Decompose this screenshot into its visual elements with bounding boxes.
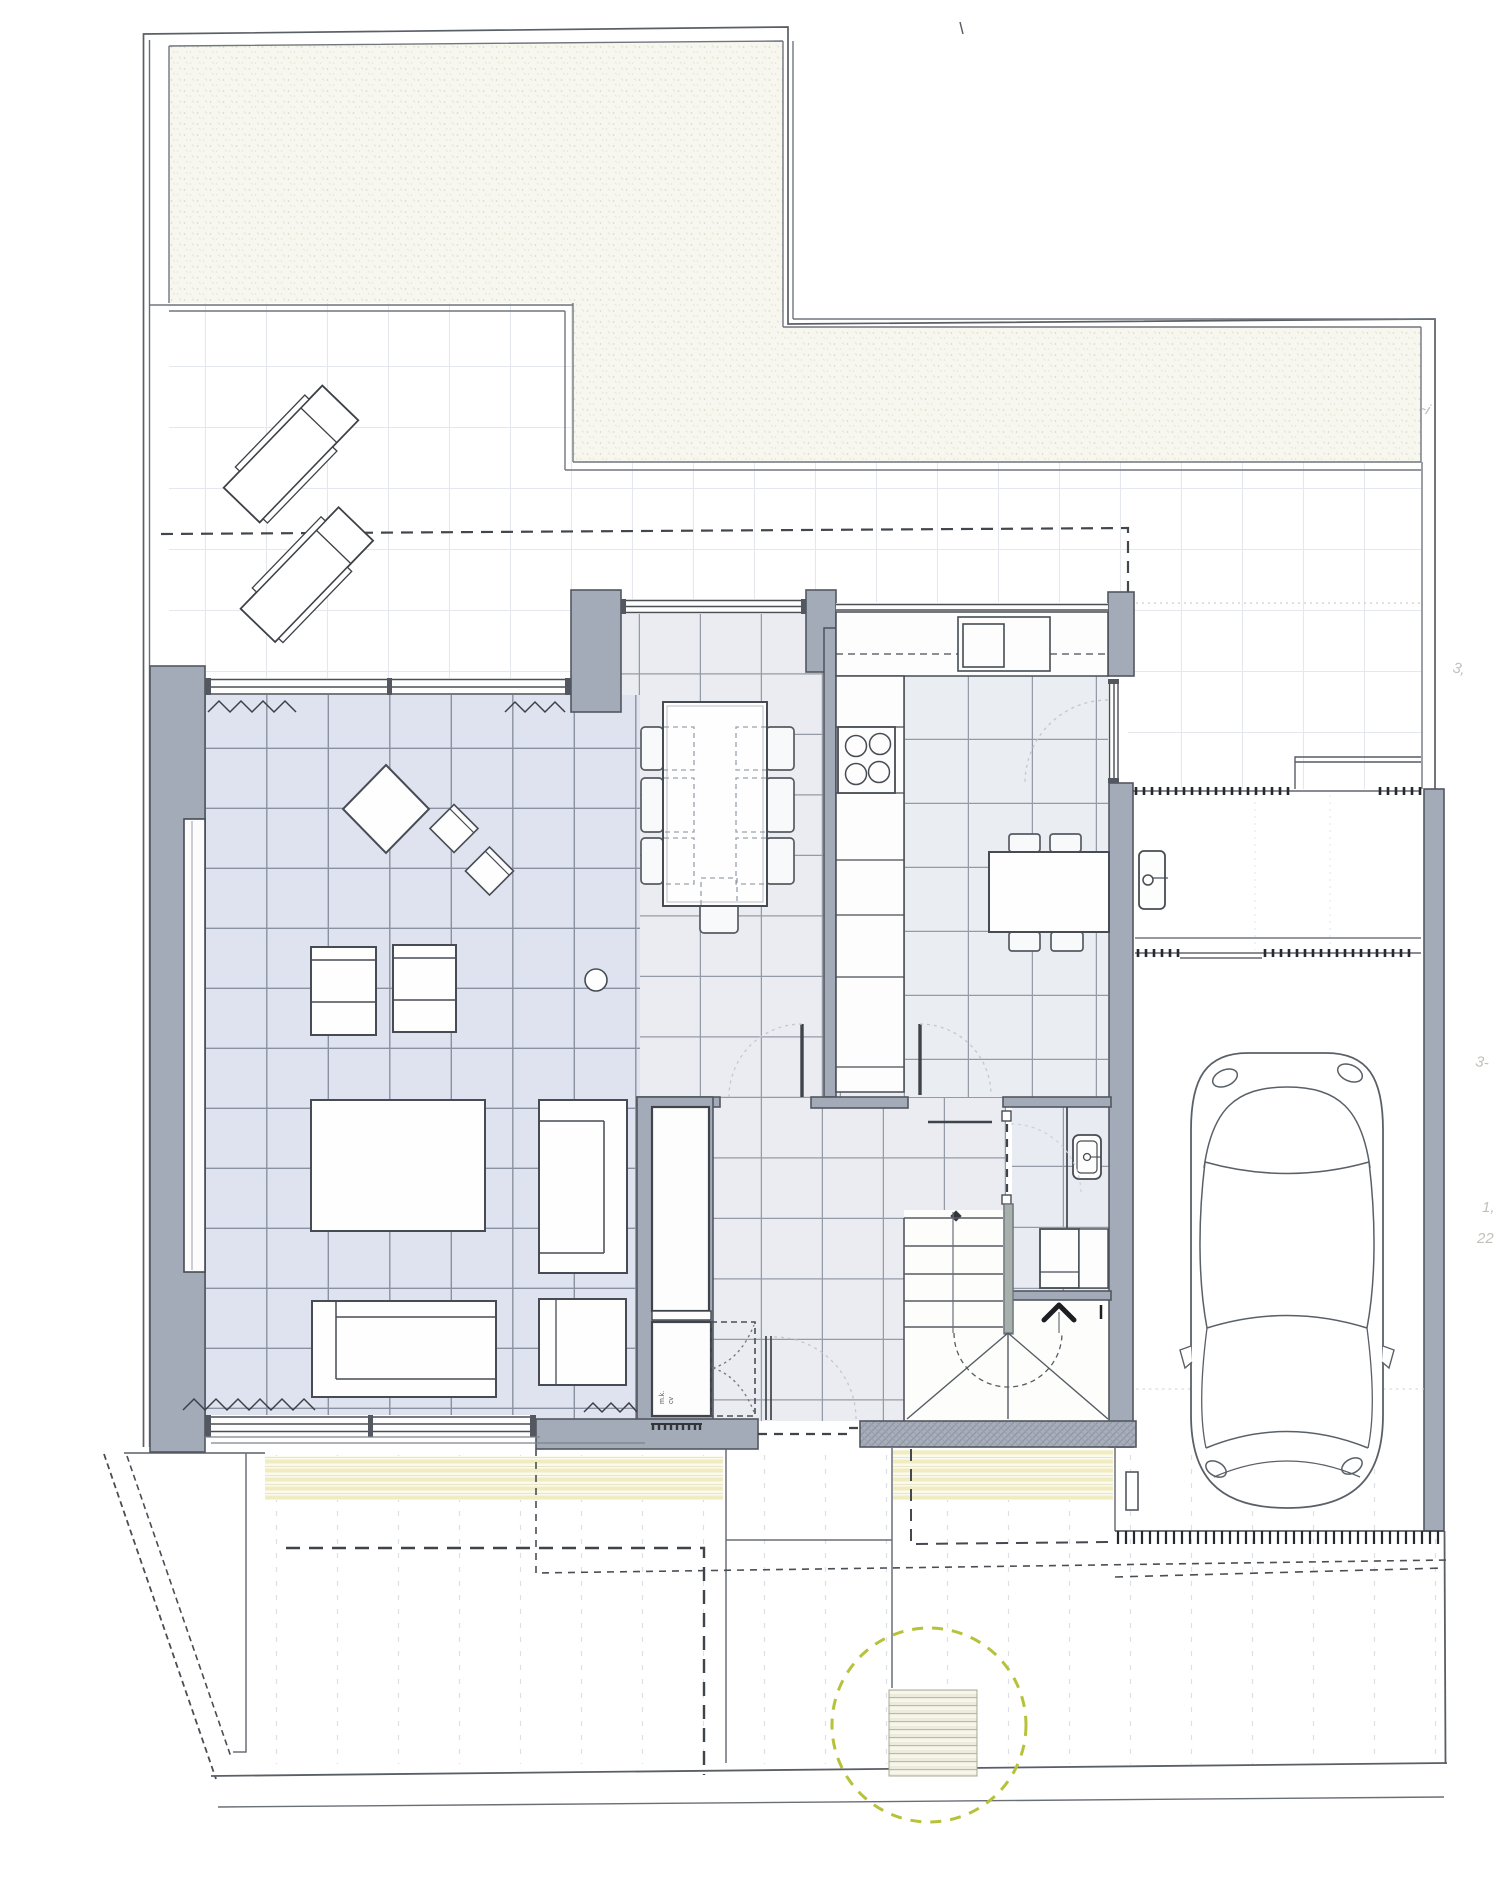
svg-text:cv: cv	[668, 1397, 675, 1405]
svg-text:22: 22	[1476, 1230, 1494, 1247]
svg-text:3-: 3-	[1474, 1053, 1490, 1072]
svg-text:m.k.: m.k.	[659, 1391, 666, 1404]
svg-text:1,: 1,	[1482, 1199, 1495, 1216]
